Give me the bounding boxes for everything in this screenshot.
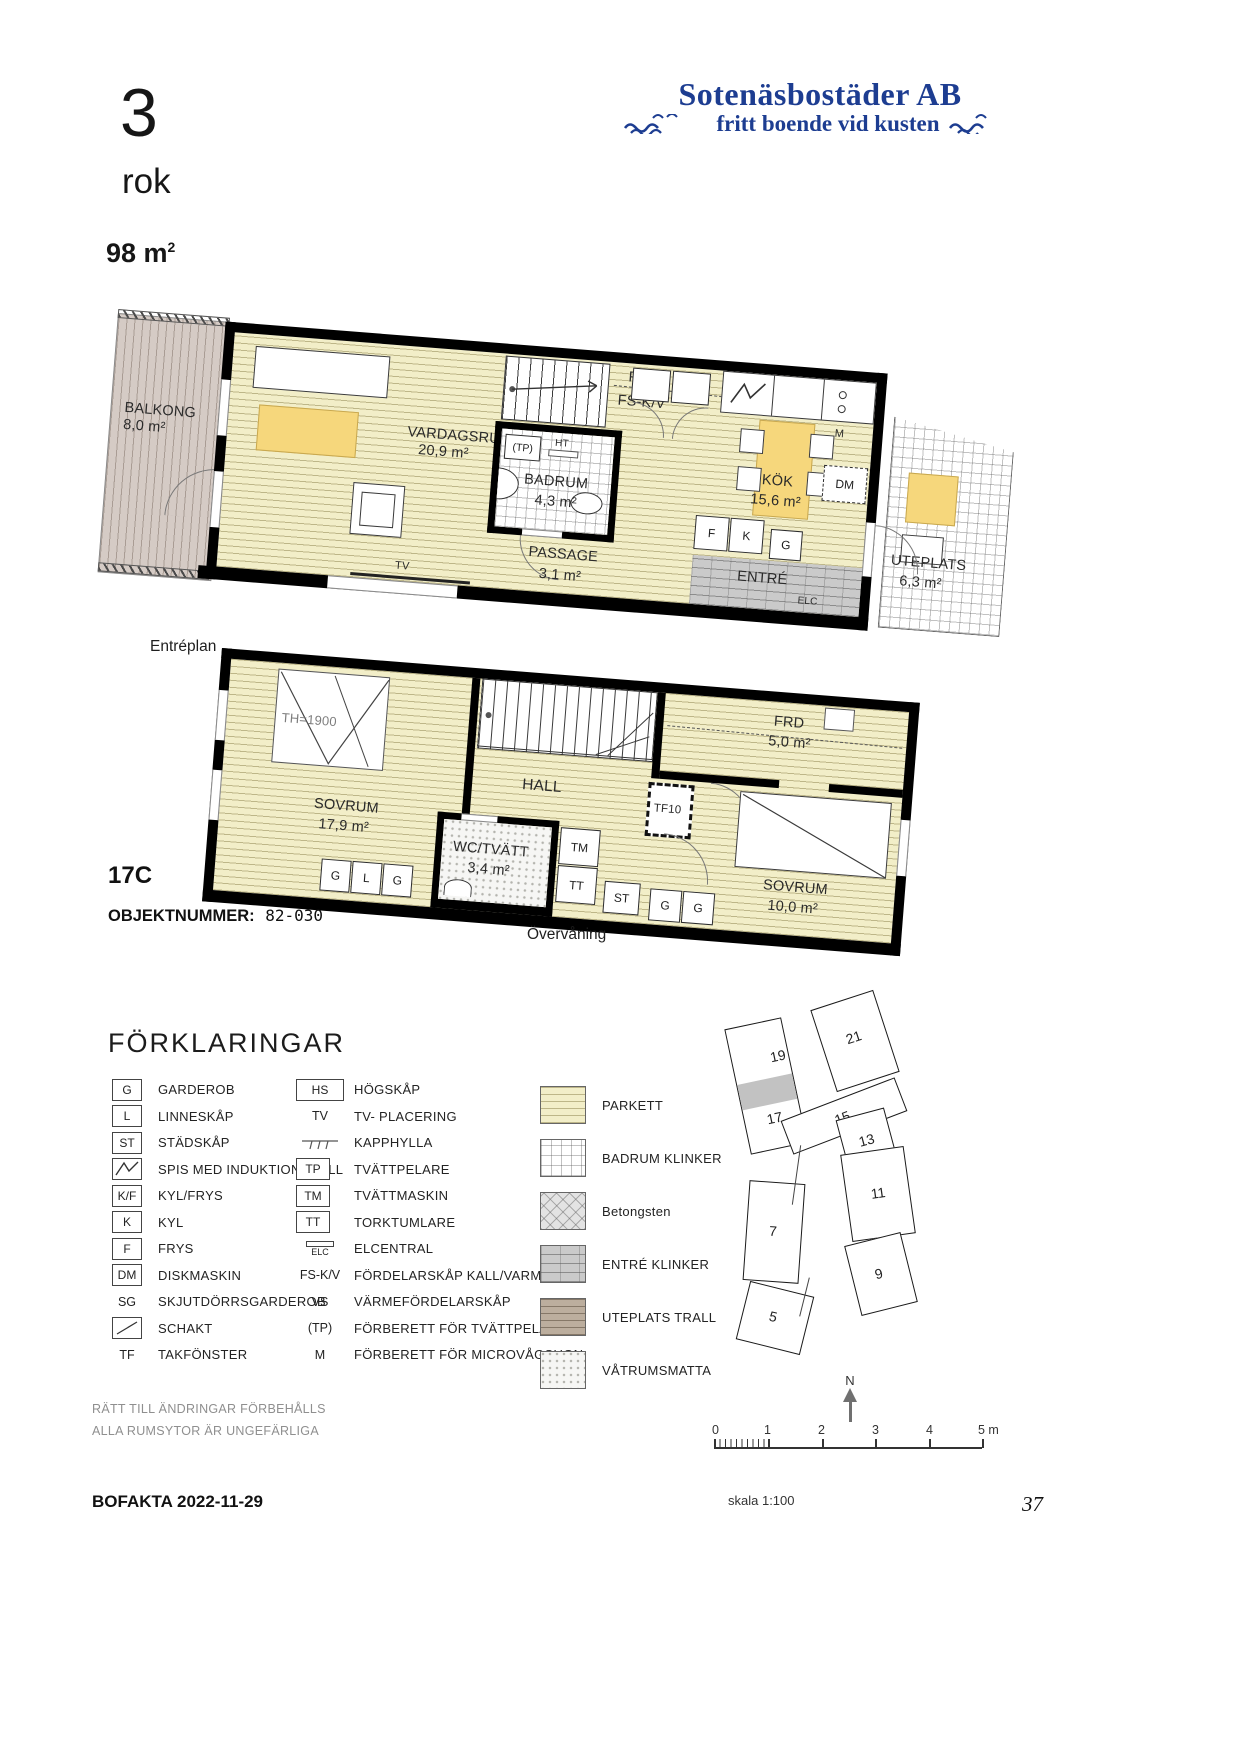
badrum-area: 4,3 m² [534, 492, 578, 513]
spis-icon [728, 378, 772, 409]
tvattmaskin-symbol: TM [296, 1185, 330, 1207]
klinker-swatch [540, 1139, 586, 1177]
disclaimer-line1: RÄTT TILL ÄNDRINGAR FÖRBEHÅLLS [92, 1402, 326, 1416]
passage-area: 3,1 m² [538, 566, 582, 587]
vs-symbol: VS [296, 1291, 344, 1313]
object-number-value: 82-030 [265, 906, 323, 925]
coffee-table [256, 404, 359, 458]
betongsten-swatch [540, 1192, 586, 1230]
schakt-icon [112, 1317, 142, 1339]
scale-caption: skala 1:100 [728, 1493, 795, 1508]
wardrobe-box: G [648, 888, 682, 922]
company-logo: Sotenäsbostäder AB fritt boende vid kust… [600, 76, 1040, 137]
skylight-label: TF10 [653, 802, 682, 818]
wardrobe-box: G [319, 858, 351, 892]
building-7: 7 [743, 1180, 806, 1284]
wave-icon [623, 114, 709, 134]
garderob-symbol: G [112, 1079, 142, 1101]
skylight-box: TF10 [645, 782, 695, 839]
elc-marker: ELC [797, 595, 818, 609]
material-item: VÅTRUMSMATTA [540, 1351, 722, 1389]
site-plan: 21 19 17 15 13 11 7 9 5 N 0 1 2 [700, 985, 1040, 1525]
north-arrow: N [838, 1373, 862, 1422]
hob-icon [829, 384, 872, 421]
freezer-box: F [693, 515, 730, 552]
plan2-caption: Övervåning [527, 926, 606, 944]
company-slogan: fritt boende vid kusten [600, 111, 1040, 137]
frd2-area: 5,0 m² [768, 733, 812, 754]
material-item: BADRUM KLINKER [540, 1139, 722, 1177]
uteplats-area: 6,3 m² [899, 573, 943, 594]
microwave-marker: M [834, 428, 844, 442]
material-item: Betongsten [540, 1192, 722, 1230]
bed-diagonal-icon [735, 792, 892, 880]
chair [736, 466, 762, 492]
north-arrow-stem [849, 1402, 852, 1422]
tv-marker: TV [394, 560, 409, 574]
sg-symbol: SG [112, 1291, 142, 1313]
dryer-box: TT [555, 865, 598, 905]
fridge-box: K [728, 518, 765, 555]
dishwasher-box: DM [821, 465, 868, 504]
unit-id: 17C [108, 862, 152, 890]
wave-icon [948, 114, 1018, 134]
entre-klinker-swatch [540, 1245, 586, 1283]
frys-symbol: F [112, 1238, 142, 1260]
wc-area: 3,4 m² [467, 860, 511, 881]
kapphylla-icon [296, 1132, 344, 1154]
tp-prepared-symbol: (TP) [296, 1317, 344, 1339]
frd2-label: FRD [773, 714, 805, 734]
m-symbol: M [296, 1344, 344, 1366]
kyl-symbol: K [112, 1211, 142, 1233]
hall-label: HALL [521, 776, 562, 798]
wardrobe-box: G [381, 863, 413, 897]
scale-subdivisions [714, 1439, 768, 1447]
tvattpelare-symbol: TP [296, 1158, 330, 1180]
stadskap-symbol: ST [112, 1132, 142, 1154]
legend-title: FÖRKLARINGAR [108, 1028, 345, 1059]
staircase [501, 356, 611, 428]
stair-arrow-icon [502, 357, 612, 429]
apartment-area: 98 m2 [106, 238, 175, 269]
building-11: 11 [840, 1146, 916, 1242]
cleaning-closet-box: ST [602, 881, 640, 916]
armchair-cushion [359, 492, 396, 529]
disclaimer-line2: ALLA RUMSYTOR ÄR UNGEFÄRLIGA [92, 1424, 319, 1438]
tv-symbol: TV [296, 1105, 344, 1127]
building-5: 5 [736, 1281, 815, 1355]
linneskap-symbol: L [112, 1105, 142, 1127]
bed [734, 791, 891, 879]
parkett-swatch [540, 1086, 586, 1124]
diskmaskin-symbol: DM [112, 1264, 142, 1286]
room-uteplats [878, 410, 1017, 637]
kylfrys-symbol: K/F [112, 1185, 142, 1207]
closet [631, 368, 671, 403]
kok-label: KÖK [761, 472, 794, 492]
roof-window [823, 708, 855, 732]
slogan-text: fritt boende vid kusten [717, 111, 940, 137]
wardrobe-box: G [769, 529, 803, 561]
ht-label: HT [555, 438, 570, 451]
building-21: 21 [810, 990, 899, 1092]
closet [671, 371, 711, 406]
patio-table [905, 473, 959, 527]
object-number-label: OBJEKTNUMMER: [108, 907, 255, 925]
company-name: Sotenäsbostäder AB [600, 76, 1040, 113]
armchair [349, 482, 405, 538]
scale-bar: 0 1 2 3 4 5 m [712, 1423, 1012, 1457]
material-item: UTEPLATS TRALL [540, 1298, 722, 1336]
stair-winder-icon [478, 680, 659, 764]
rooms-unit: rok [122, 162, 171, 202]
linen-box: L [350, 861, 382, 895]
bofakta-page: 3 rok 98 m2 Sotenäsbostäder AB fritt boe… [0, 0, 1240, 1754]
material-item: ENTRÉ KLINKER [540, 1245, 722, 1283]
rooms-count: 3 [120, 74, 158, 152]
object-number-row: OBJEKTNUMMER: 82-030 [108, 906, 323, 926]
fskv-symbol: FS-K/V [296, 1264, 344, 1286]
washer-box: TM [558, 827, 601, 867]
wardrobe-box: G [681, 891, 715, 925]
floorplan-entreplan: BALKONG 8,0 m² VARDAGSRUM 20,9 m² TV [98, 313, 1020, 641]
th-zone: TH=1900 [271, 669, 390, 771]
unit-17c-highlight [737, 1073, 797, 1110]
scale-baseline [714, 1447, 982, 1449]
page-number: 37 [1022, 1492, 1043, 1517]
trall-swatch [540, 1298, 586, 1336]
staircase [477, 679, 658, 763]
bofakta-date: BOFAKTA 2022-11-29 [92, 1492, 263, 1512]
north-arrow-tip [843, 1388, 857, 1402]
material-item: PARKETT [540, 1086, 722, 1124]
elcentral-icon: ELC [296, 1238, 344, 1260]
vatrumsmatta-swatch [540, 1351, 586, 1389]
hogskap-symbol: HS [296, 1079, 344, 1101]
material-legend: PARKETT BADRUM KLINKER Betongsten ENTRÉ … [540, 1086, 722, 1404]
spis-icon [112, 1158, 142, 1180]
balkong-label: BALKONG 8,0 m² [122, 400, 196, 440]
chair [809, 434, 835, 460]
building-9: 9 [844, 1232, 918, 1316]
tf-symbol: TF [112, 1344, 142, 1366]
chair [739, 428, 765, 454]
plan1-caption: Entréplan [150, 638, 216, 656]
torktumlare-symbol: TT [296, 1211, 330, 1233]
tp-prepared-box: (TP) [504, 434, 542, 462]
